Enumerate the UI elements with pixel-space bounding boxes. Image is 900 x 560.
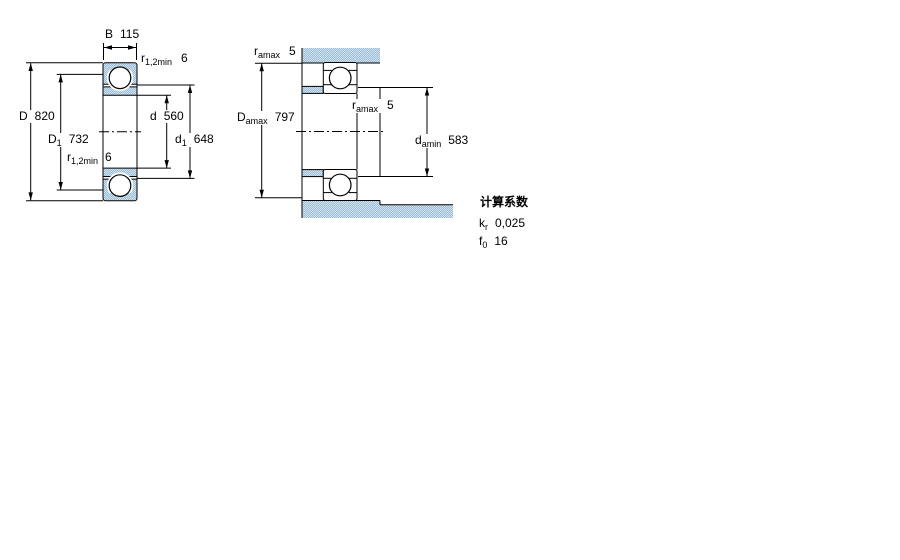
technical-drawing-page: B115 r1,2min6 D820 D1732 d560 d1648 r1,2…: [0, 0, 900, 560]
dim-subscript: 1,2min: [71, 156, 98, 166]
dim-subscript: amax: [356, 104, 378, 114]
dim-label-D1: D1732: [47, 133, 90, 147]
dim-value: 5: [289, 44, 296, 58]
dim-label-ramax-middle: ramax5: [351, 99, 395, 113]
dim-value: 6: [181, 51, 188, 65]
dim-subscript: amin: [422, 139, 442, 149]
right-bearing-top-section: [323, 63, 357, 94]
right-bearing-bottom-section: [323, 170, 357, 201]
dim-label-B: B115: [105, 28, 139, 41]
dim-label-d1: d1648: [174, 133, 215, 147]
dimension-Damax: [255, 63, 302, 197]
dim-label-r12-top: r1,2min6: [141, 52, 188, 66]
shaft-block-step: [302, 201, 380, 205]
ball-top: [109, 67, 131, 89]
dimension-damin: [425, 88, 429, 177]
dim-label-ramax-top: ramax5: [254, 45, 296, 59]
dim-value: 820: [35, 109, 55, 123]
dim-symbol: D: [48, 132, 57, 146]
dim-label-damin: damin583: [414, 134, 469, 148]
dim-value: 648: [194, 132, 214, 146]
housing-block: [302, 48, 380, 63]
dim-value: 560: [164, 109, 184, 123]
ball-top: [329, 67, 351, 89]
dimension-B: [104, 43, 137, 60]
dim-subscript: 1,2min: [145, 57, 172, 67]
dim-label-d: d560: [149, 110, 185, 123]
factor-kr: kr0,025: [479, 216, 525, 230]
dim-symbol: d: [150, 109, 157, 123]
dimension-D: [26, 63, 103, 201]
dim-subscript: 1: [182, 138, 187, 148]
dim-value: 583: [448, 133, 468, 147]
factor-value: 0,025: [495, 216, 525, 230]
dim-label-Damax: Damax797: [236, 111, 296, 125]
shaft-shoulder-bottom: [302, 170, 323, 177]
ball-bottom: [109, 175, 131, 197]
dimension-d: [137, 95, 171, 168]
factor-f0: f016: [479, 234, 508, 248]
factor-subscript: 0: [482, 240, 487, 250]
right-diagram: [255, 48, 453, 218]
calculation-factors-title: 计算系数: [480, 193, 528, 210]
dim-label-D: D820: [18, 110, 56, 123]
dim-label-r12-bottom: r1,2min6: [67, 151, 112, 165]
dim-value: 6: [105, 150, 112, 164]
drawing-canvas: [0, 0, 900, 560]
ball-bottom: [329, 174, 351, 196]
dim-subscript: amax: [246, 116, 268, 126]
dim-value: 797: [275, 110, 295, 124]
shaft-block: [302, 205, 453, 218]
dim-subscript: amax: [258, 50, 280, 60]
dim-symbol: D: [237, 110, 246, 124]
dim-symbol: d: [415, 133, 422, 147]
dim-value: 5: [387, 98, 394, 112]
shaft-shoulder-top: [302, 86, 323, 93]
factor-subscript: r: [485, 222, 488, 232]
dim-symbol: B: [105, 27, 113, 41]
dim-subscript: 1: [57, 138, 62, 148]
factor-value: 16: [494, 234, 507, 248]
dim-value: 115: [120, 27, 139, 41]
dim-symbol: D: [19, 109, 28, 123]
dim-value: 732: [69, 132, 89, 146]
dim-symbol: d: [175, 132, 182, 146]
